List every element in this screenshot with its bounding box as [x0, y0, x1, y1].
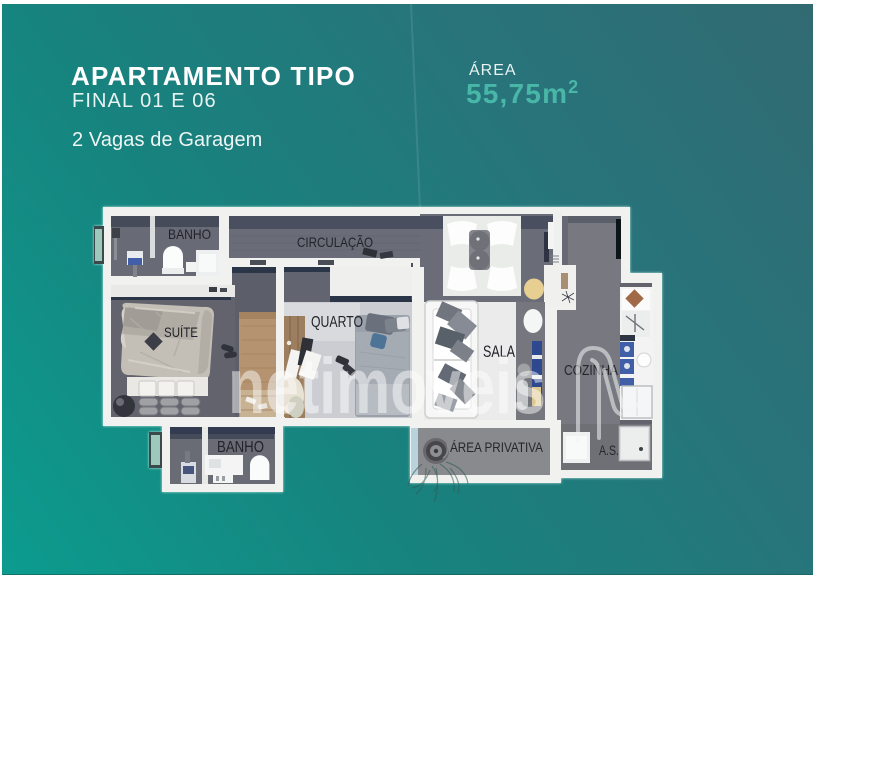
svg-text:A.S.: A.S.: [599, 443, 619, 458]
svg-text:QUARTO: QUARTO: [311, 314, 363, 331]
svg-text:SUÍTE: SUÍTE: [164, 325, 198, 340]
svg-text:2 Vagas de Garagem: 2 Vagas de Garagem: [72, 129, 262, 151]
svg-text:ÁREA: ÁREA: [469, 60, 517, 79]
svg-text:netimoveis: netimoveis: [228, 341, 546, 430]
svg-text:ÁREA PRIVATIVA: ÁREA PRIVATIVA: [450, 439, 544, 455]
svg-text:APARTAMENTO TIPO: APARTAMENTO TIPO: [71, 61, 356, 91]
svg-text:55,75m2: 55,75m2: [466, 77, 579, 109]
svg-text:BANHO: BANHO: [168, 226, 211, 242]
svg-text:FINAL 01 E 06: FINAL 01 E 06: [72, 90, 217, 112]
svg-text:CIRCULAÇÃO: CIRCULAÇÃO: [297, 234, 373, 250]
svg-text:BANHO: BANHO: [217, 439, 264, 456]
